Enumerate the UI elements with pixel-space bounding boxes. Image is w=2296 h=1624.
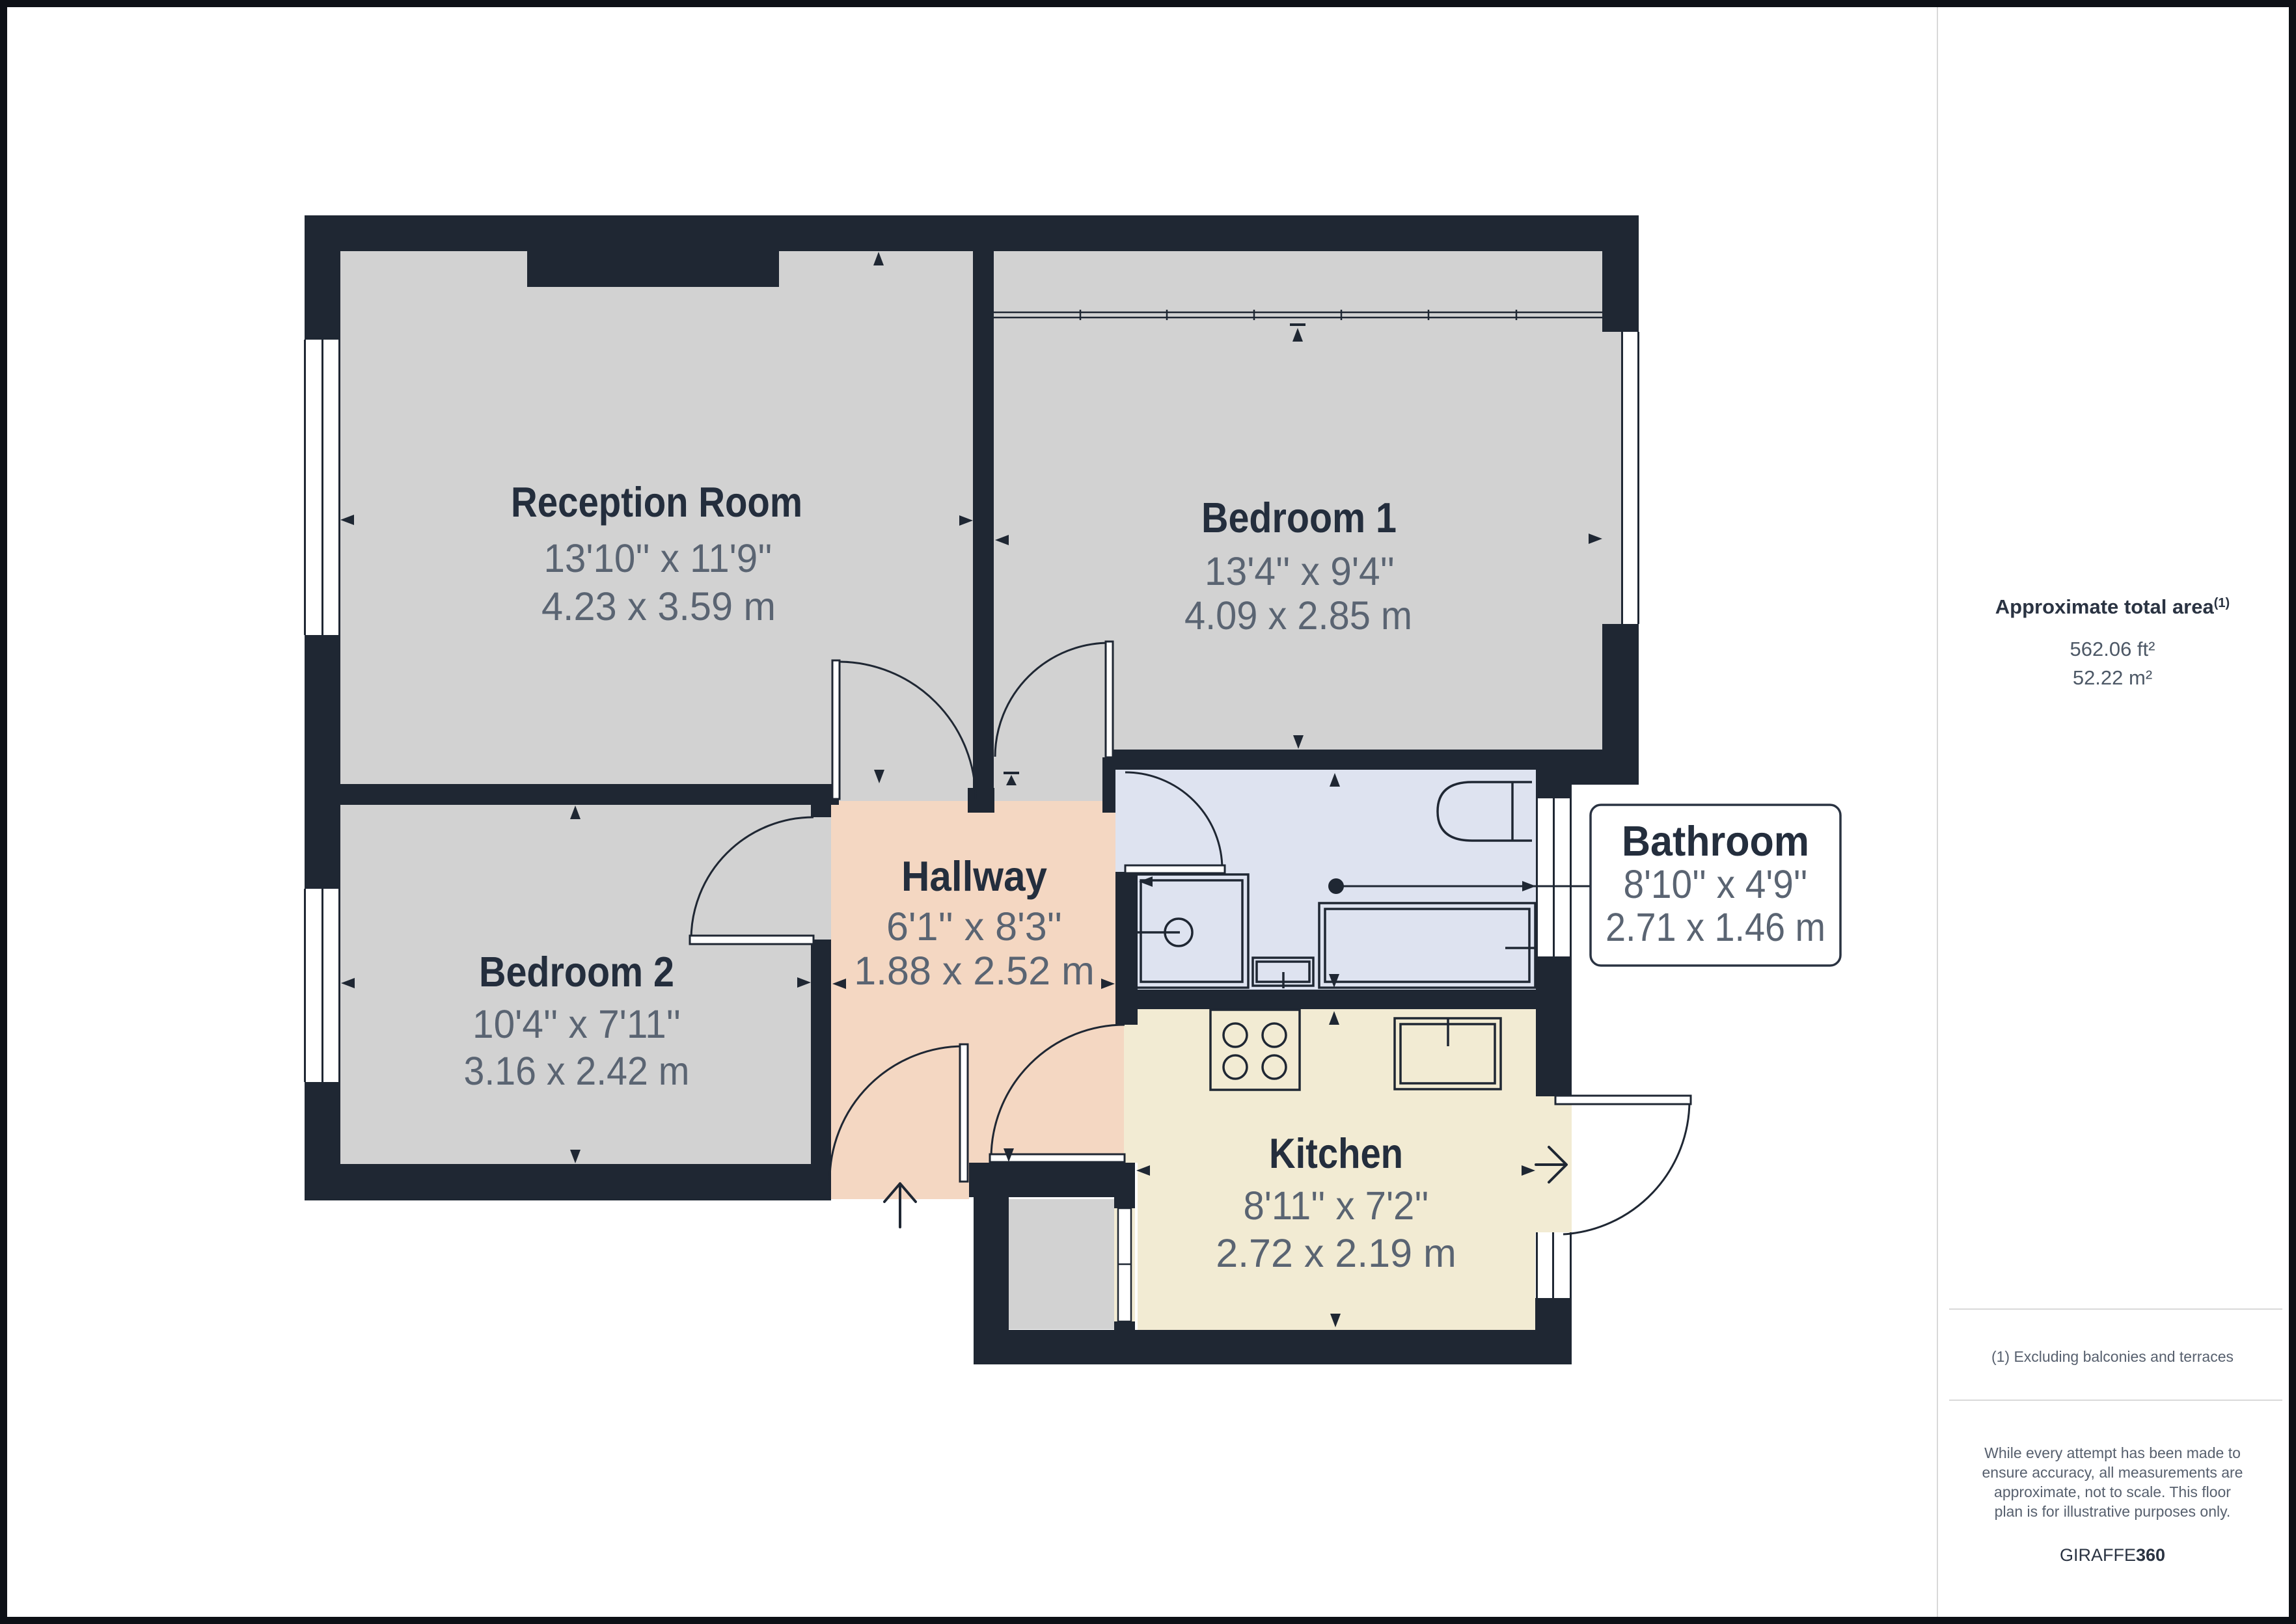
svg-text:Hallway: Hallway [901, 852, 1047, 900]
svg-text:2.71 x 1.46 m: 2.71 x 1.46 m [1606, 905, 1825, 949]
svg-text:Bathroom: Bathroom [1622, 817, 1809, 865]
svg-text:1.88 x 2.52 m: 1.88 x 2.52 m [854, 949, 1095, 993]
svg-text:13'10'' x 11'9'': 13'10'' x 11'9'' [544, 536, 772, 580]
svg-text:8'11'' x 7'2'': 8'11'' x 7'2'' [1244, 1184, 1429, 1228]
svg-text:562.06 ft²: 562.06 ft² [2070, 638, 2155, 660]
svg-text:approximate, not to scale. Thi: approximate, not to scale. This floor [1994, 1483, 2231, 1500]
svg-text:52.22 m²: 52.22 m² [2073, 666, 2152, 689]
svg-text:6'1'' x 8'3'': 6'1'' x 8'3'' [886, 904, 1062, 949]
svg-text:2.72 x 2.19 m: 2.72 x 2.19 m [1216, 1231, 1456, 1275]
svg-text:Approximate total area(1): Approximate total area(1) [1995, 595, 2230, 618]
svg-text:10'4'' x 7'11'': 10'4'' x 7'11'' [472, 1002, 681, 1046]
svg-text:Bedroom 1: Bedroom 1 [1201, 494, 1397, 541]
svg-text:(1) Excluding balconies and te: (1) Excluding balconies and terraces [1991, 1348, 2234, 1365]
svg-text:Reception Room: Reception Room [511, 478, 802, 526]
svg-text:GIRAFFE360: GIRAFFE360 [2060, 1545, 2165, 1565]
svg-text:plan is for illustrative purpo: plan is for illustrative purposes only. [1995, 1503, 2231, 1520]
svg-text:Bedroom 2: Bedroom 2 [479, 948, 674, 995]
svg-text:While every attempt has been m: While every attempt has been made to [1984, 1444, 2241, 1461]
svg-text:8'10'' x 4'9'': 8'10'' x 4'9'' [1624, 862, 1808, 906]
svg-text:4.09 x 2.85 m: 4.09 x 2.85 m [1184, 593, 1412, 638]
svg-text:4.23 x 3.59 m: 4.23 x 3.59 m [541, 584, 776, 629]
svg-text:ensure accuracy, all measureme: ensure accuracy, all measurements are [1982, 1464, 2243, 1481]
svg-text:Kitchen: Kitchen [1269, 1130, 1403, 1177]
svg-text:3.16 x 2.42 m: 3.16 x 2.42 m [464, 1049, 690, 1093]
svg-text:13'4'' x 9'4'': 13'4'' x 9'4'' [1205, 549, 1395, 593]
